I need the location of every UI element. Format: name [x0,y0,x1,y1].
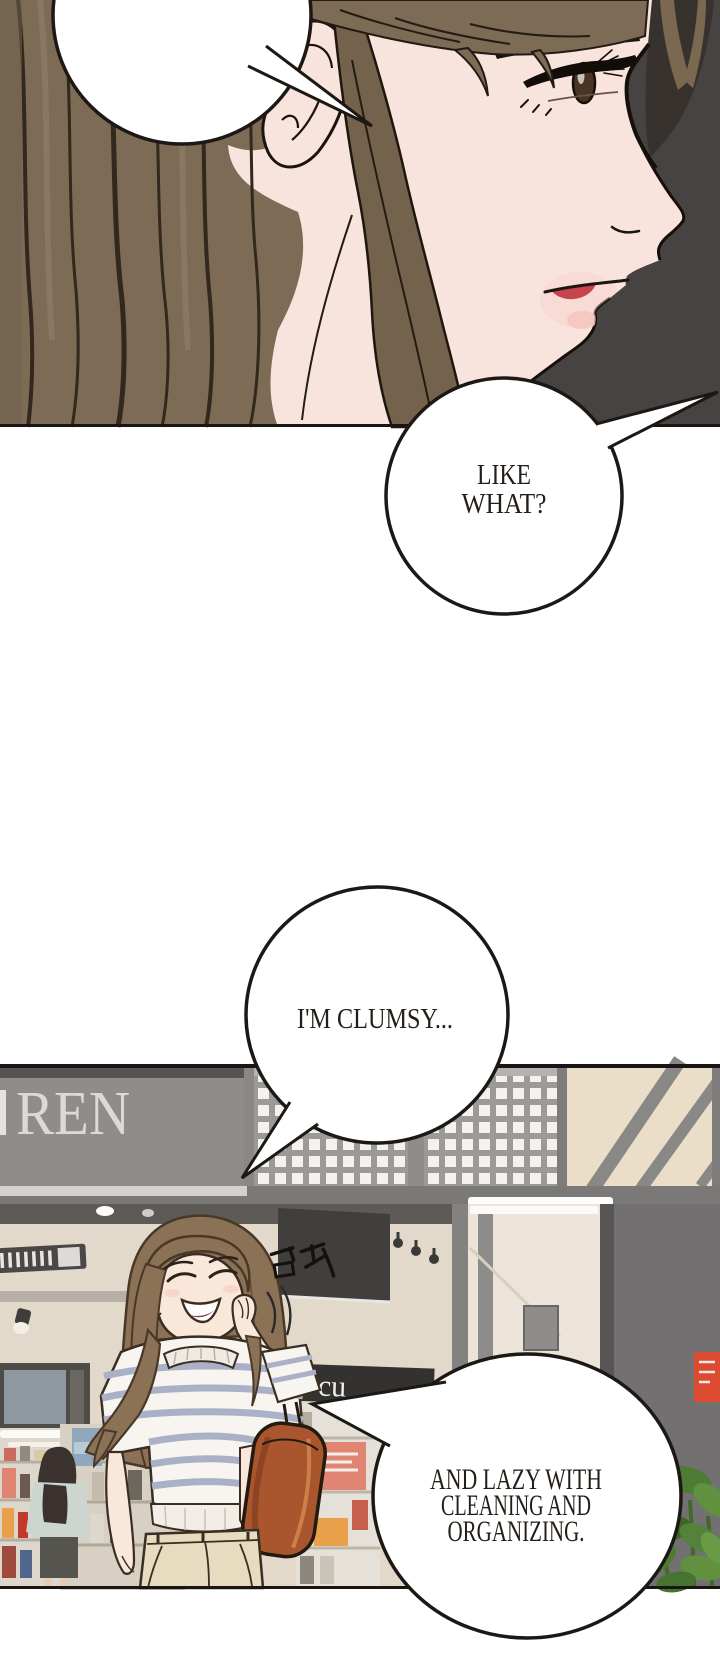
svg-text:REN: REN [16,1080,130,1148]
svg-text:WHAT?: WHAT? [462,488,547,520]
svg-text:ORGANIZING.: ORGANIZING. [448,1515,585,1548]
svg-text:LIKE: LIKE [477,459,531,491]
svg-text:I'M CLUMSY...: I'M CLUMSY... [297,1004,453,1035]
